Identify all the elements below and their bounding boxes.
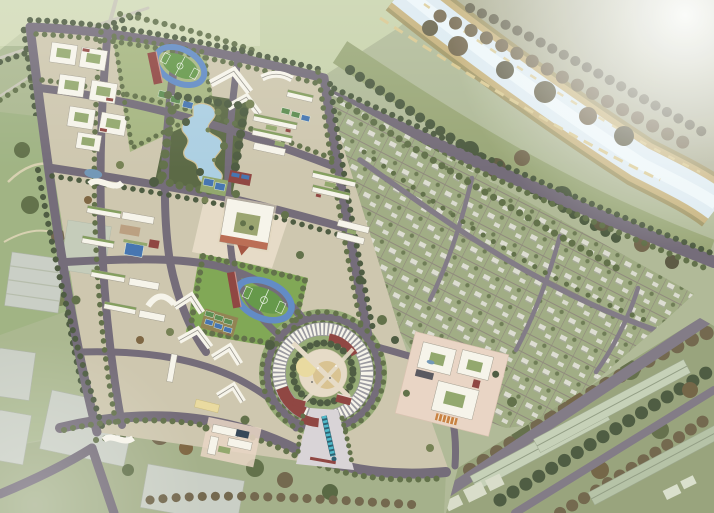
- atmosphere-haze: [0, 0, 714, 513]
- aerial-scene: Aerial masterplan rendering of a campus …: [0, 0, 714, 513]
- masterplan-rendering: Aerial masterplan rendering of a campus …: [0, 0, 714, 513]
